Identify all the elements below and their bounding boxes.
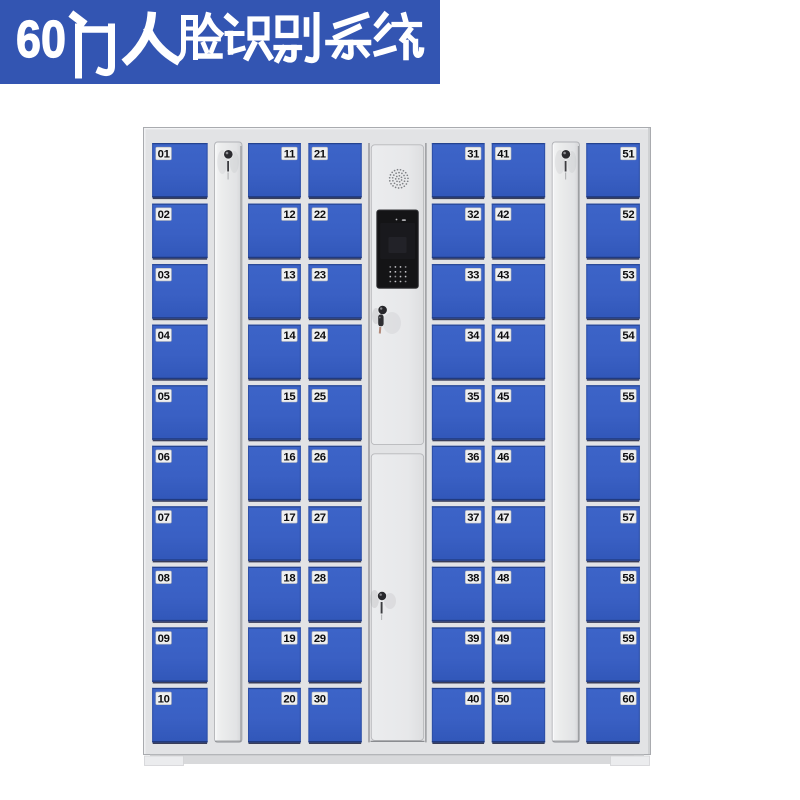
svg-text:39: 39 bbox=[467, 633, 479, 645]
svg-text:10: 10 bbox=[158, 694, 170, 706]
svg-text:51: 51 bbox=[622, 149, 634, 161]
svg-text:56: 56 bbox=[622, 451, 634, 463]
svg-text:06: 06 bbox=[158, 451, 170, 463]
svg-text:31: 31 bbox=[467, 149, 479, 161]
svg-text:44: 44 bbox=[497, 330, 510, 342]
svg-text:54: 54 bbox=[622, 330, 635, 342]
svg-text:05: 05 bbox=[158, 391, 170, 403]
svg-text:16: 16 bbox=[283, 451, 295, 463]
svg-text:60: 60 bbox=[622, 694, 634, 706]
svg-text:13: 13 bbox=[283, 270, 295, 282]
svg-text:25: 25 bbox=[314, 391, 326, 403]
svg-text:02: 02 bbox=[158, 209, 170, 221]
svg-text:24: 24 bbox=[314, 330, 327, 342]
svg-text:52: 52 bbox=[622, 209, 634, 221]
svg-text:43: 43 bbox=[497, 270, 509, 282]
svg-text:23: 23 bbox=[314, 270, 326, 282]
svg-text:49: 49 bbox=[497, 633, 509, 645]
svg-text:55: 55 bbox=[622, 391, 634, 403]
svg-text:38: 38 bbox=[467, 572, 479, 584]
svg-text:30: 30 bbox=[314, 694, 326, 706]
svg-text:07: 07 bbox=[158, 512, 170, 524]
svg-text:26: 26 bbox=[314, 451, 326, 463]
svg-text:32: 32 bbox=[467, 209, 479, 221]
svg-text:01: 01 bbox=[158, 149, 170, 161]
svg-text:48: 48 bbox=[497, 572, 509, 584]
svg-text:45: 45 bbox=[497, 391, 509, 403]
svg-text:50: 50 bbox=[497, 694, 509, 706]
svg-text:15: 15 bbox=[283, 391, 295, 403]
svg-text:12: 12 bbox=[283, 209, 295, 221]
svg-text:47: 47 bbox=[497, 512, 509, 524]
svg-text:35: 35 bbox=[467, 391, 479, 403]
svg-text:58: 58 bbox=[622, 572, 634, 584]
svg-text:60: 60 bbox=[16, 11, 66, 69]
svg-text:37: 37 bbox=[467, 512, 479, 524]
svg-text:11: 11 bbox=[284, 149, 295, 161]
svg-text:17: 17 bbox=[283, 512, 295, 524]
svg-text:14: 14 bbox=[283, 330, 296, 342]
svg-text:19: 19 bbox=[283, 633, 295, 645]
svg-text:08: 08 bbox=[158, 572, 170, 584]
svg-text:33: 33 bbox=[467, 270, 479, 282]
svg-text:57: 57 bbox=[622, 512, 634, 524]
svg-text:18: 18 bbox=[283, 572, 295, 584]
svg-text:41: 41 bbox=[497, 149, 509, 161]
svg-text:04: 04 bbox=[158, 330, 171, 342]
svg-text:28: 28 bbox=[314, 572, 326, 584]
svg-text:42: 42 bbox=[497, 209, 509, 221]
svg-text:21: 21 bbox=[314, 149, 326, 161]
svg-text:03: 03 bbox=[158, 270, 170, 282]
svg-text:22: 22 bbox=[314, 209, 326, 221]
svg-text:40: 40 bbox=[467, 694, 479, 706]
svg-text:09: 09 bbox=[158, 633, 170, 645]
svg-text:59: 59 bbox=[622, 633, 634, 645]
svg-text:36: 36 bbox=[467, 451, 479, 463]
svg-text:29: 29 bbox=[314, 633, 326, 645]
svg-text:34: 34 bbox=[467, 330, 480, 342]
svg-text:27: 27 bbox=[314, 512, 326, 524]
svg-text:46: 46 bbox=[497, 451, 509, 463]
svg-text:20: 20 bbox=[283, 694, 295, 706]
svg-text:53: 53 bbox=[622, 270, 634, 282]
